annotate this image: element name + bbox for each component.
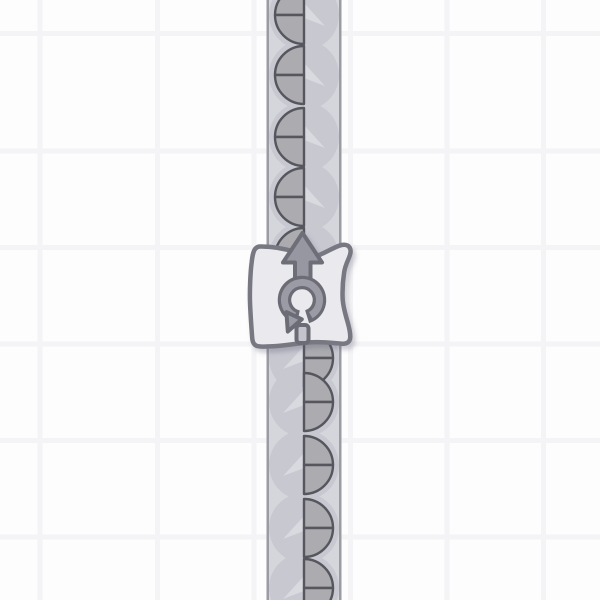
rotator-building[interactable]	[250, 233, 351, 347]
game-viewport[interactable]	[0, 0, 600, 600]
shape-quadrant	[275, 0, 304, 15]
input-peg	[297, 325, 309, 343]
game-scene	[0, 0, 600, 600]
shape-quadrant	[304, 588, 333, 600]
